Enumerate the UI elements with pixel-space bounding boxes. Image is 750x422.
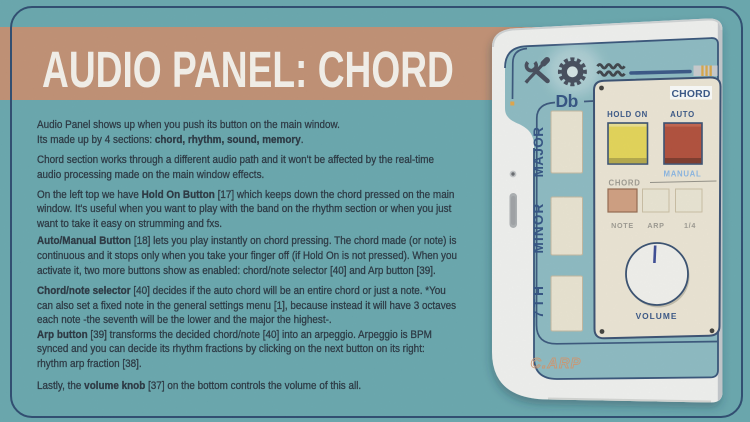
svg-text:7TH: 7TH [531, 283, 546, 318]
svg-text:Db: Db [556, 91, 578, 111]
svg-text:MINOR: MINOR [531, 203, 546, 254]
svg-text:VOLUME: VOLUME [636, 311, 678, 321]
svg-text:AUTO: AUTO [670, 110, 695, 119]
svg-text:NOTE: NOTE [611, 221, 634, 230]
svg-text:ARP: ARP [647, 221, 664, 230]
svg-text:C.ARP: C.ARP [530, 356, 581, 372]
svg-text:MANUAL: MANUAL [664, 170, 702, 179]
svg-text:CHORD: CHORD [609, 179, 641, 188]
svg-text:1/4: 1/4 [684, 221, 696, 230]
svg-text:CHORD: CHORD [671, 89, 710, 100]
svg-text:MAJOR: MAJOR [531, 127, 546, 178]
svg-text:HOLD ON: HOLD ON [607, 110, 648, 119]
